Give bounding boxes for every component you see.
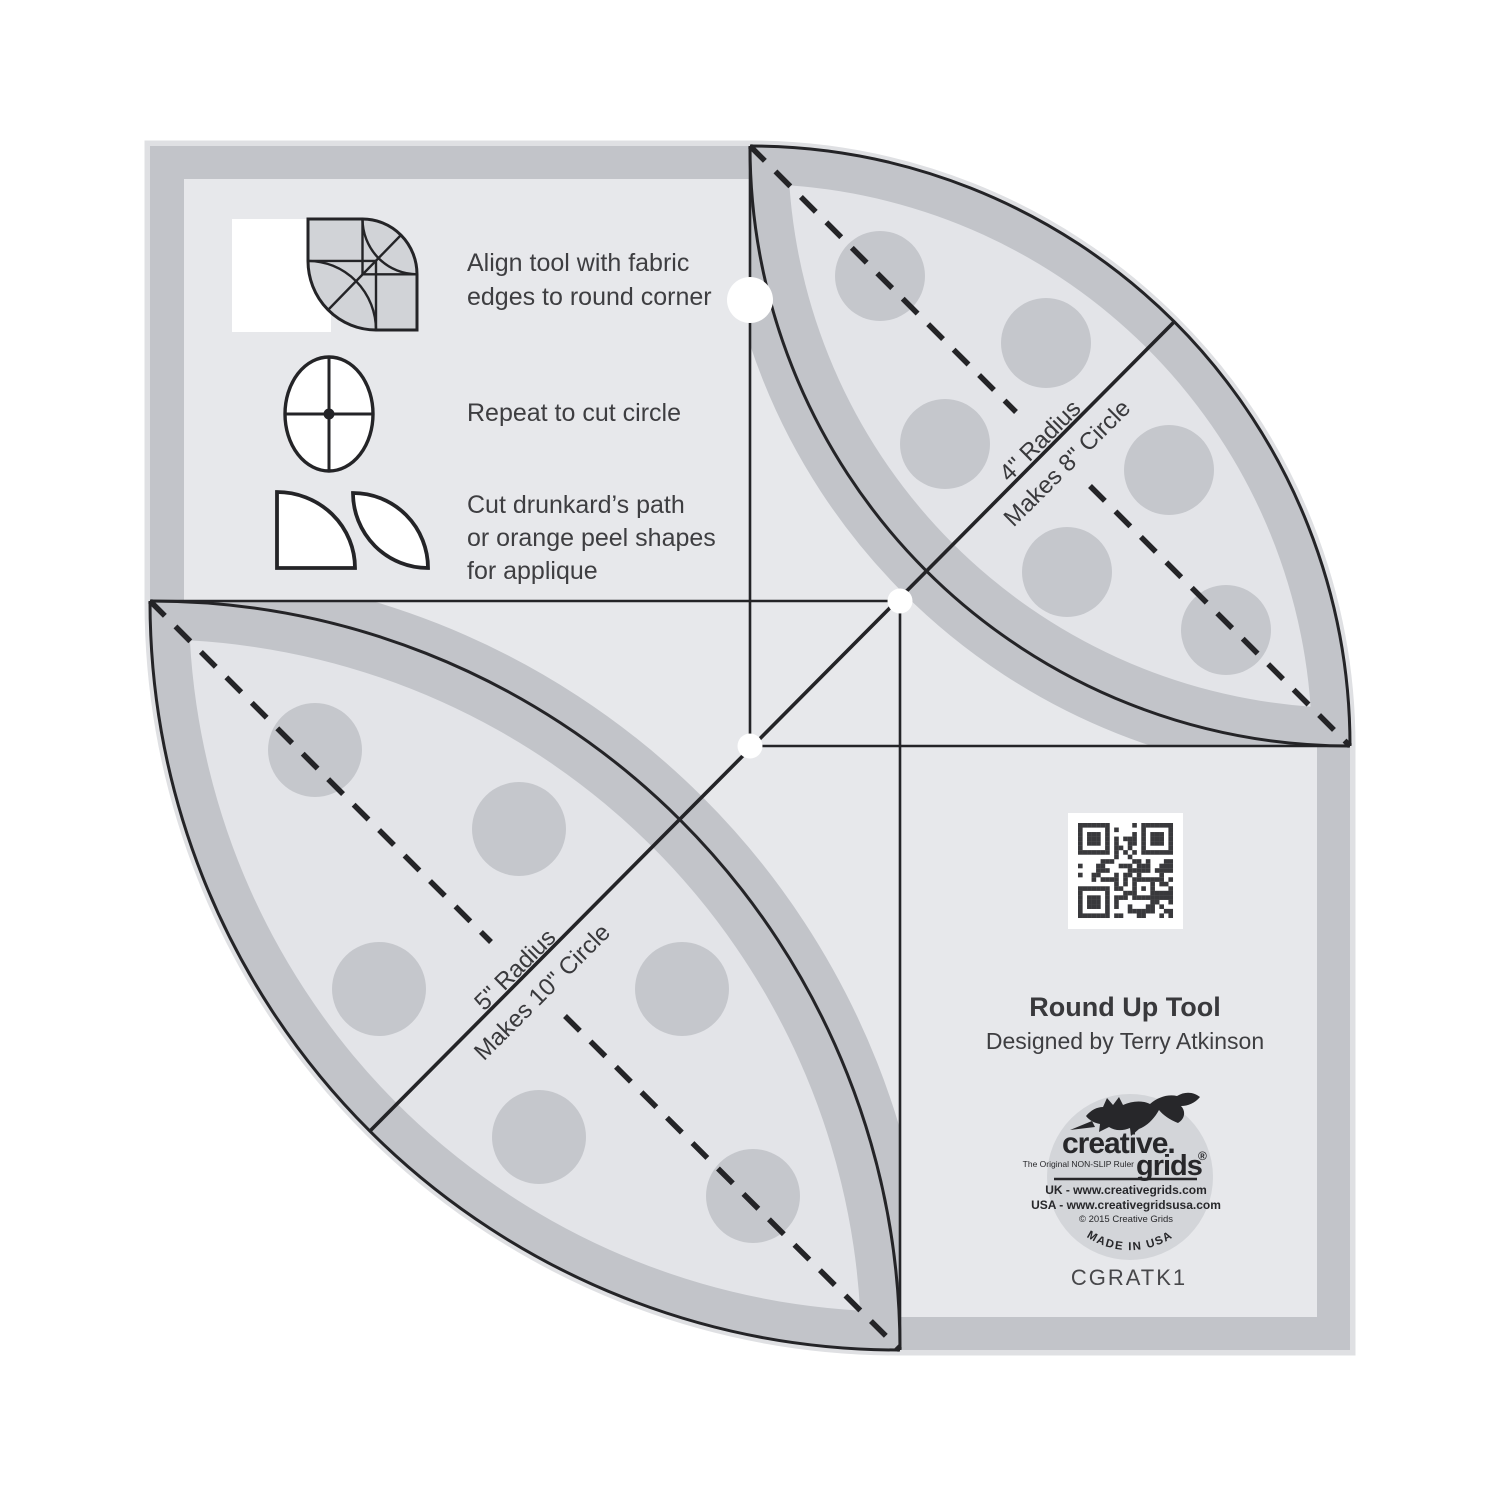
- diagram-cut-circle: [285, 357, 373, 471]
- round-up-tool-product-image: 4" Radius Makes 8" Circle 5" Radius Make…: [0, 0, 1500, 1500]
- pivot-hole-5in: [888, 589, 913, 614]
- logo-brand-bottom: grids: [1136, 1150, 1202, 1182]
- circle-center-dot: [324, 409, 335, 420]
- logo-registered-mark: ®: [1198, 1149, 1207, 1163]
- product-title: Round Up Tool: [1029, 992, 1220, 1022]
- logo-usa-url: USA - www.creativegridsusa.com: [1031, 1198, 1221, 1212]
- logo-tagline: The Original NON-SLIP Ruler: [1023, 1159, 1134, 1169]
- product-code: CGRATK1: [1071, 1265, 1187, 1290]
- pivot-hole-4in: [738, 734, 763, 759]
- logo-uk-url: UK - www.creativegrids.com: [1045, 1183, 1207, 1197]
- logo-copyright: © 2015 Creative Grids: [1079, 1214, 1173, 1225]
- instruction-repeat: Repeat to cut circle: [467, 399, 681, 427]
- product-designer: Designed by Terry Atkinson: [986, 1028, 1264, 1054]
- alignment-hole-top: [727, 277, 773, 323]
- diagram-align-corner: [232, 219, 417, 332]
- qr-code: [1068, 813, 1183, 929]
